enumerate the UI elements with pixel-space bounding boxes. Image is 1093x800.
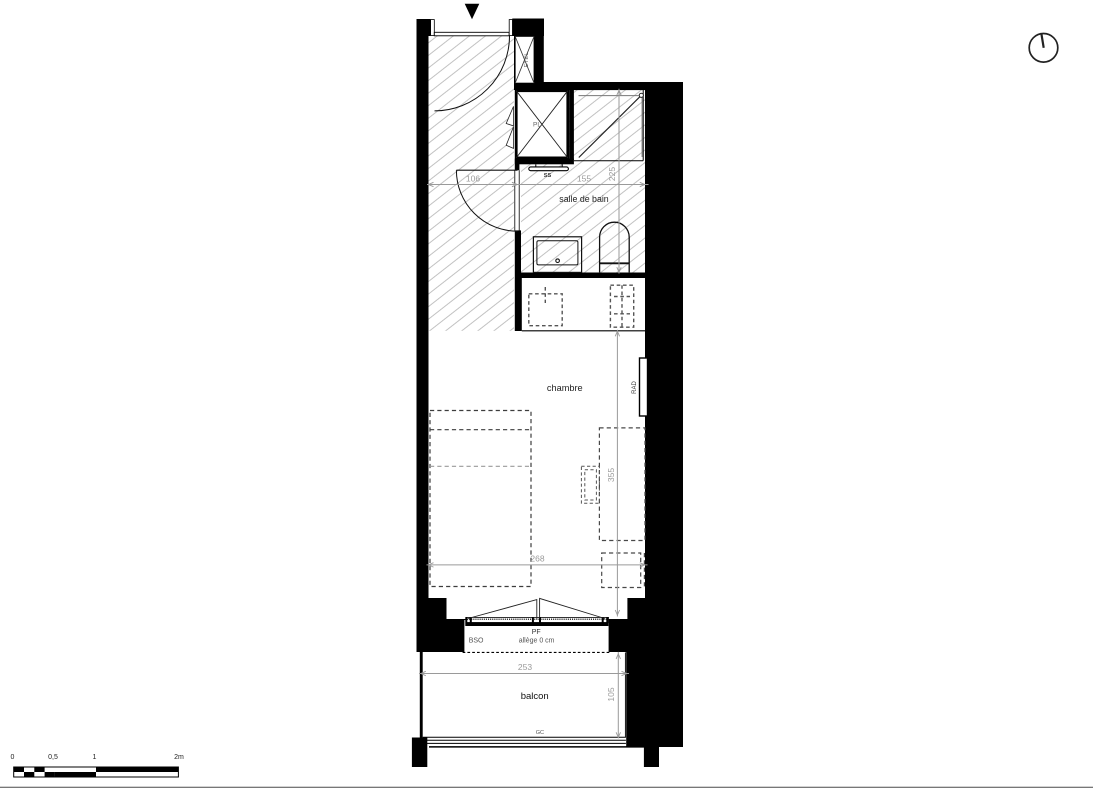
svg-text:155: 155 (577, 173, 591, 183)
svg-text:BSO: BSO (469, 638, 484, 645)
svg-text:1: 1 (93, 754, 97, 761)
svg-text:355: 355 (606, 468, 616, 482)
svg-text:0,5: 0,5 (48, 754, 58, 761)
svg-text:balcon: balcon (521, 691, 549, 702)
svg-text:ETEL: ETEL (524, 52, 530, 67)
svg-text:RAD: RAD (632, 381, 638, 394)
svg-text:GC: GC (536, 730, 544, 736)
svg-text:chambre: chambre (547, 383, 583, 393)
svg-text:225: 225 (607, 167, 617, 181)
svg-text:2m: 2m (174, 754, 184, 761)
svg-text:105: 105 (606, 687, 616, 701)
svg-text:PF: PF (532, 629, 541, 636)
svg-text:106: 106 (466, 173, 480, 183)
svg-text:268: 268 (530, 554, 544, 564)
svg-text:PL: PL (533, 122, 541, 129)
svg-text:0: 0 (11, 754, 15, 761)
svg-text:253: 253 (518, 662, 532, 672)
svg-text:allège 0 cm: allège 0 cm (519, 638, 555, 645)
svg-text:SS: SS (544, 173, 552, 179)
svg-text:salle de bain: salle de bain (559, 194, 609, 204)
